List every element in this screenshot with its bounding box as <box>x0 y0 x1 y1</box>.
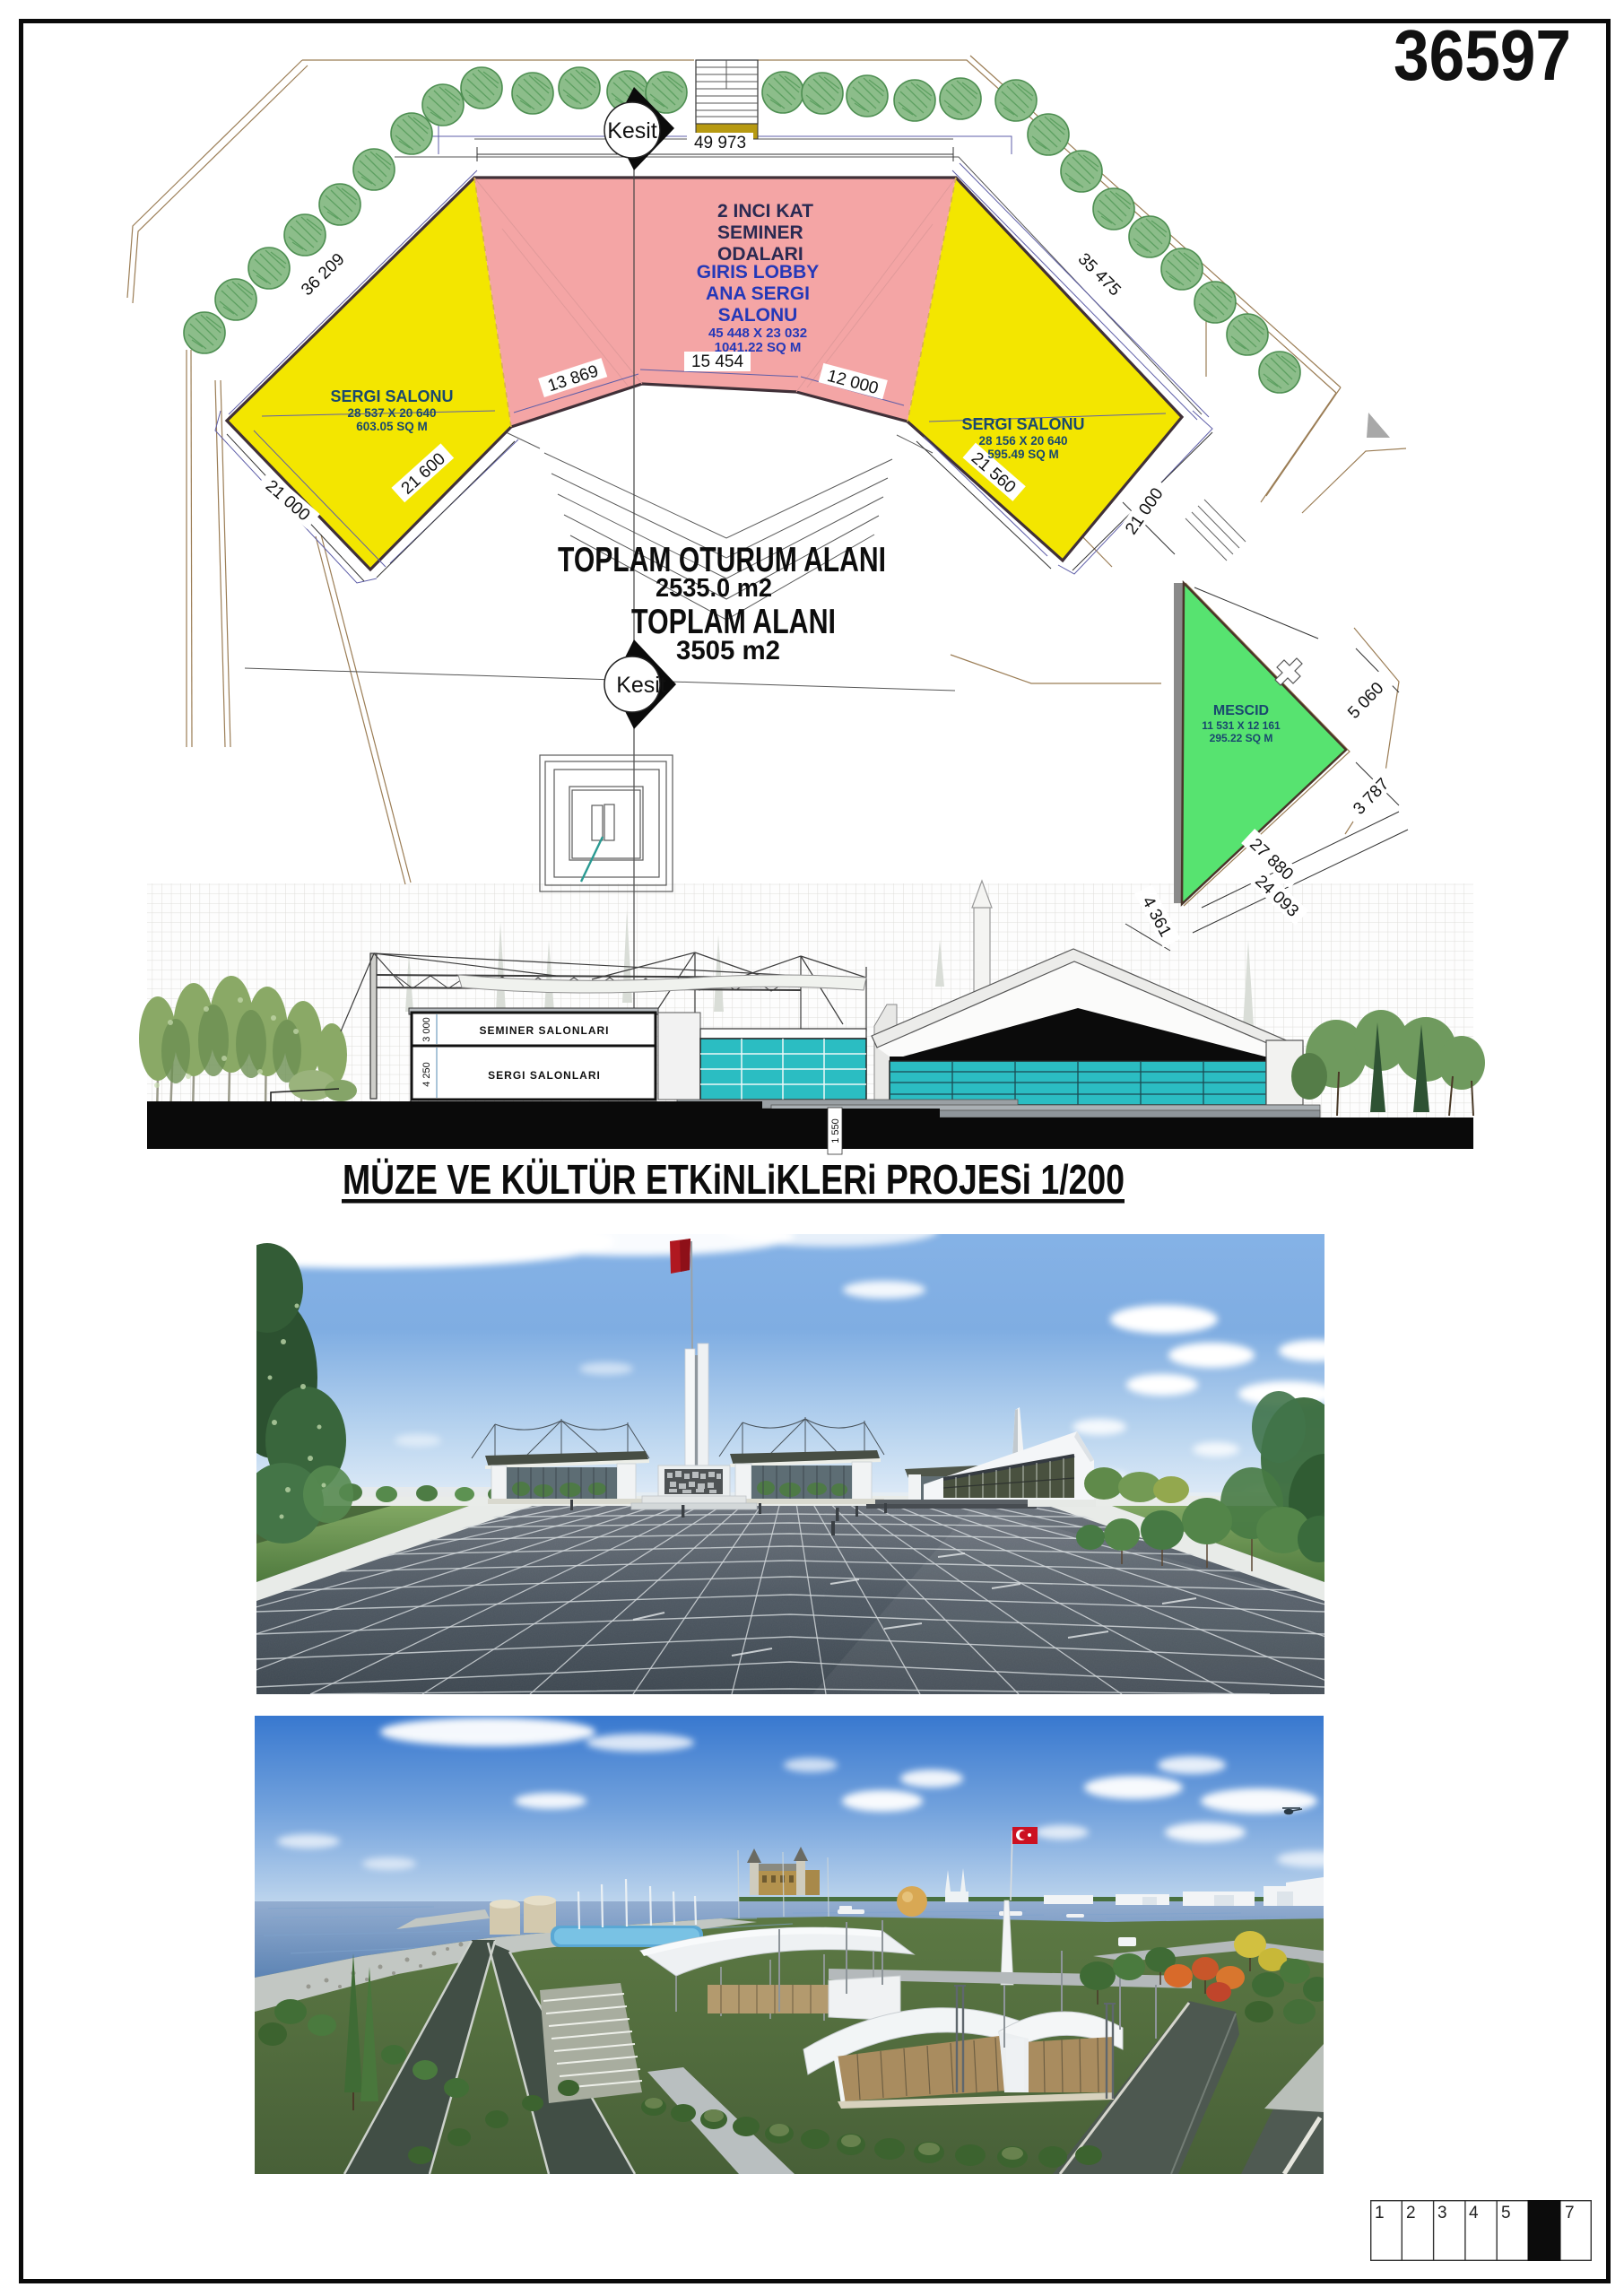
svg-text:4: 4 <box>1469 2204 1479 2222</box>
svg-text:1: 1 <box>1375 2204 1385 2222</box>
svg-text:603.05 SQ M: 603.05 SQ M <box>356 420 428 433</box>
svg-text:1041.22 SQ M: 1041.22 SQ M <box>715 340 802 355</box>
svg-text:GIRIS LOBBY: GIRIS LOBBY <box>697 262 820 283</box>
svg-text:Kesit: Kesit <box>607 118 657 143</box>
svg-text:2: 2 <box>1406 2204 1416 2222</box>
svg-text:595.49 SQ M: 595.49 SQ M <box>987 448 1059 461</box>
svg-text:MÜZE VE KÜLTÜR ETKiNLiKLERi P: MÜZE VE KÜLTÜR ETKiNLiKLERi PROJESi 1/20… <box>343 1156 1125 1203</box>
svg-text:7: 7 <box>1565 2204 1575 2222</box>
svg-text:5: 5 <box>1501 2204 1511 2222</box>
svg-text:295.22 SQ M: 295.22 SQ M <box>1210 732 1273 744</box>
svg-text:MESCID: MESCID <box>1213 703 1269 718</box>
svg-text:36 209: 36 209 <box>298 250 348 300</box>
svg-text:SALONU: SALONU <box>718 305 798 326</box>
svg-text:28 156 X 20 640: 28 156 X 20 640 <box>978 434 1067 448</box>
svg-text:15 454: 15 454 <box>691 352 744 371</box>
svg-text:35 475: 35 475 <box>1074 249 1125 300</box>
svg-text:2 INCI KAT: 2 INCI KAT <box>717 201 813 222</box>
svg-text:SEMINER SALONLARI: SEMINER SALONLARI <box>479 1024 609 1037</box>
svg-text:SERGI SALONLARI: SERGI SALONLARI <box>488 1069 601 1082</box>
svg-text:49 973: 49 973 <box>694 134 746 152</box>
svg-text:SERGI SALONU: SERGI SALONU <box>330 387 453 405</box>
svg-text:3 000: 3 000 <box>421 1017 432 1042</box>
svg-text:45 448 X 23 032: 45 448 X 23 032 <box>708 326 807 341</box>
svg-text:2535.0 m2: 2535.0 m2 <box>656 574 772 603</box>
svg-text:28 537 X 20 640: 28 537 X 20 640 <box>347 406 436 420</box>
svg-text:3505 m2: 3505 m2 <box>676 636 780 665</box>
svg-text:11 531 X 12 161: 11 531 X 12 161 <box>1202 719 1281 732</box>
svg-text:4 250: 4 250 <box>421 1062 432 1087</box>
svg-text:SERGI SALONU: SERGI SALONU <box>961 415 1084 433</box>
svg-text:SEMINER: SEMINER <box>717 222 803 243</box>
svg-text:3: 3 <box>1437 2204 1447 2222</box>
svg-text:1 550: 1 550 <box>830 1118 841 1144</box>
svg-text:ANA SERGI: ANA SERGI <box>706 283 810 304</box>
svg-text:Kesit: Kesit <box>616 673 666 698</box>
